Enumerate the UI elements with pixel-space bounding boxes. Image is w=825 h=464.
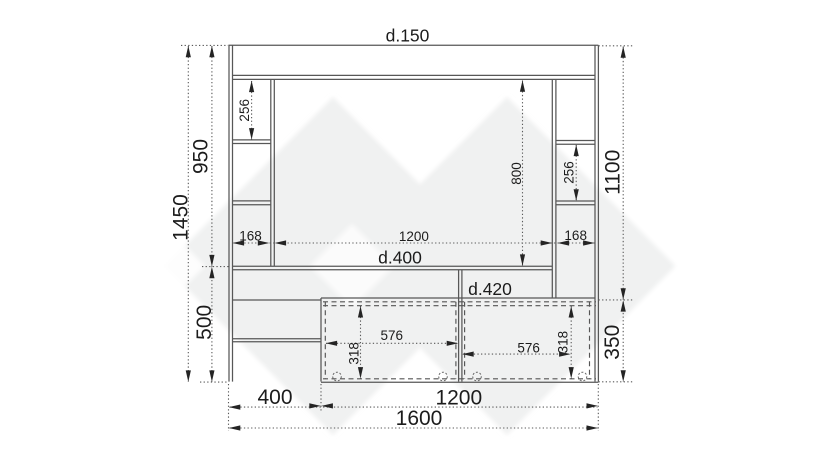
svg-text:1200: 1200 <box>399 229 429 244</box>
svg-text:500: 500 <box>193 305 216 340</box>
svg-text:168: 168 <box>564 228 587 243</box>
svg-text:576: 576 <box>381 328 404 343</box>
svg-text:950: 950 <box>190 139 213 174</box>
svg-text:1200: 1200 <box>435 387 482 410</box>
svg-text:318: 318 <box>347 342 362 365</box>
svg-text:400: 400 <box>257 386 292 409</box>
svg-text:1600: 1600 <box>396 407 443 430</box>
svg-text:d.400: d.400 <box>378 248 422 268</box>
svg-text:d.150: d.150 <box>386 26 430 46</box>
svg-text:1450: 1450 <box>170 194 193 241</box>
svg-text:d.420: d.420 <box>468 279 512 299</box>
svg-text:576: 576 <box>517 340 540 355</box>
svg-text:318: 318 <box>556 331 571 354</box>
svg-text:256: 256 <box>237 99 252 122</box>
svg-text:168: 168 <box>239 228 262 243</box>
svg-text:800: 800 <box>509 162 524 185</box>
svg-text:1100: 1100 <box>601 150 624 195</box>
svg-text:256: 256 <box>561 161 576 184</box>
svg-text:350: 350 <box>601 325 624 360</box>
